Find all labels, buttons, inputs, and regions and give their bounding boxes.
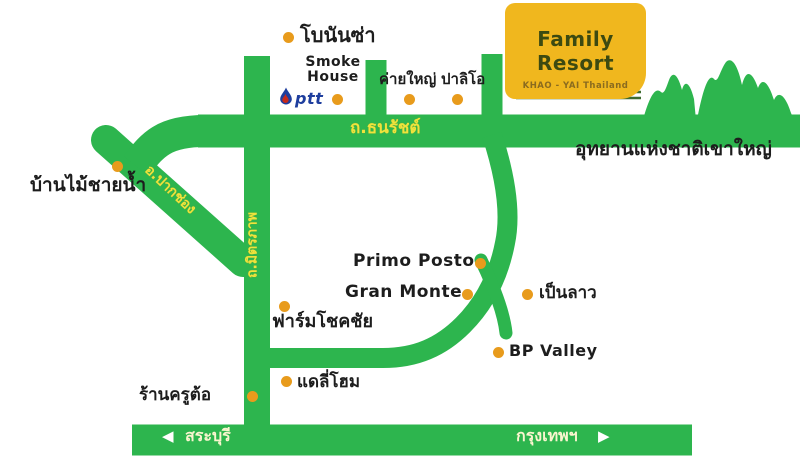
marker-dot-farm-chokchai xyxy=(279,301,290,312)
direction-label-saraburi: สระบุรี xyxy=(185,428,231,445)
park-label-khao-yai: อุทยานแห่งชาติเขาใหญ่ xyxy=(575,140,772,160)
marker-dot-dairy-home xyxy=(281,376,292,387)
marker-dot-khai-yai xyxy=(404,94,415,105)
khao-yai-route-map: Family Resort KHAO - YAI Thailand ถ.ธนรั… xyxy=(0,0,800,458)
resort-sign-subtitle: KHAO - YAI Thailand xyxy=(505,81,646,91)
marker-dot-primo-posto xyxy=(475,258,486,269)
east-arrow-icon: ▶ xyxy=(598,429,610,445)
place-label-gran-monte: Gran Monte xyxy=(345,284,462,302)
west-arrow-icon: ◀ xyxy=(162,429,174,445)
direction-label-bangkok: กรุงเทพฯ xyxy=(516,428,578,445)
marker-dot-bonanza xyxy=(283,32,294,43)
place-label-dairy-home: แดลี่โฮม xyxy=(297,374,360,392)
place-label-bonanza: โบนันซ่า xyxy=(300,25,376,46)
place-label-ran-khru-tor: ร้านครูต้อ xyxy=(139,387,211,405)
road-thanarat-west-curve xyxy=(136,131,205,166)
marker-dot-ran-khru-tor xyxy=(247,391,258,402)
resort-sign-title: Family Resort xyxy=(505,27,646,75)
place-label-bp-valley: BP Valley xyxy=(509,343,598,360)
place-label-khai-yai: ค่ายใหญ่ xyxy=(379,72,436,88)
marker-dot-gran-monte xyxy=(462,289,473,300)
road-network xyxy=(0,0,800,458)
marker-dot-bp-valley xyxy=(493,347,504,358)
marker-dot-smoke-house-ptt xyxy=(332,94,343,105)
place-label-pen-lao: เป็นลาว xyxy=(539,285,597,303)
marker-dot-palio xyxy=(452,94,463,105)
road-label-thanarat: ถ.ธนรัชต์ xyxy=(350,120,420,138)
place-label-baan-mai-chai-nam: บ้านไม้ชายน้ำ xyxy=(30,176,146,196)
mountains-icon xyxy=(643,60,794,120)
road-label-mittraphap: ถ.มิตรภาพ xyxy=(246,212,261,278)
ptt-flame-icon xyxy=(279,87,293,105)
resort-sign: Family Resort KHAO - YAI Thailand xyxy=(505,3,646,99)
marker-dot-pen-lao xyxy=(522,289,533,300)
marker-dot-baan-mai-chai-nam xyxy=(112,161,123,172)
place-label-palio: ปาลิโอ xyxy=(441,72,485,88)
place-label-ptt: ptt xyxy=(295,89,323,108)
place-label-farm-chokchai: ฟาร์มโชคชัย xyxy=(272,313,373,332)
place-label-smoke-house: Smoke House xyxy=(293,55,373,84)
place-label-primo-posto: Primo Posto xyxy=(353,253,475,271)
